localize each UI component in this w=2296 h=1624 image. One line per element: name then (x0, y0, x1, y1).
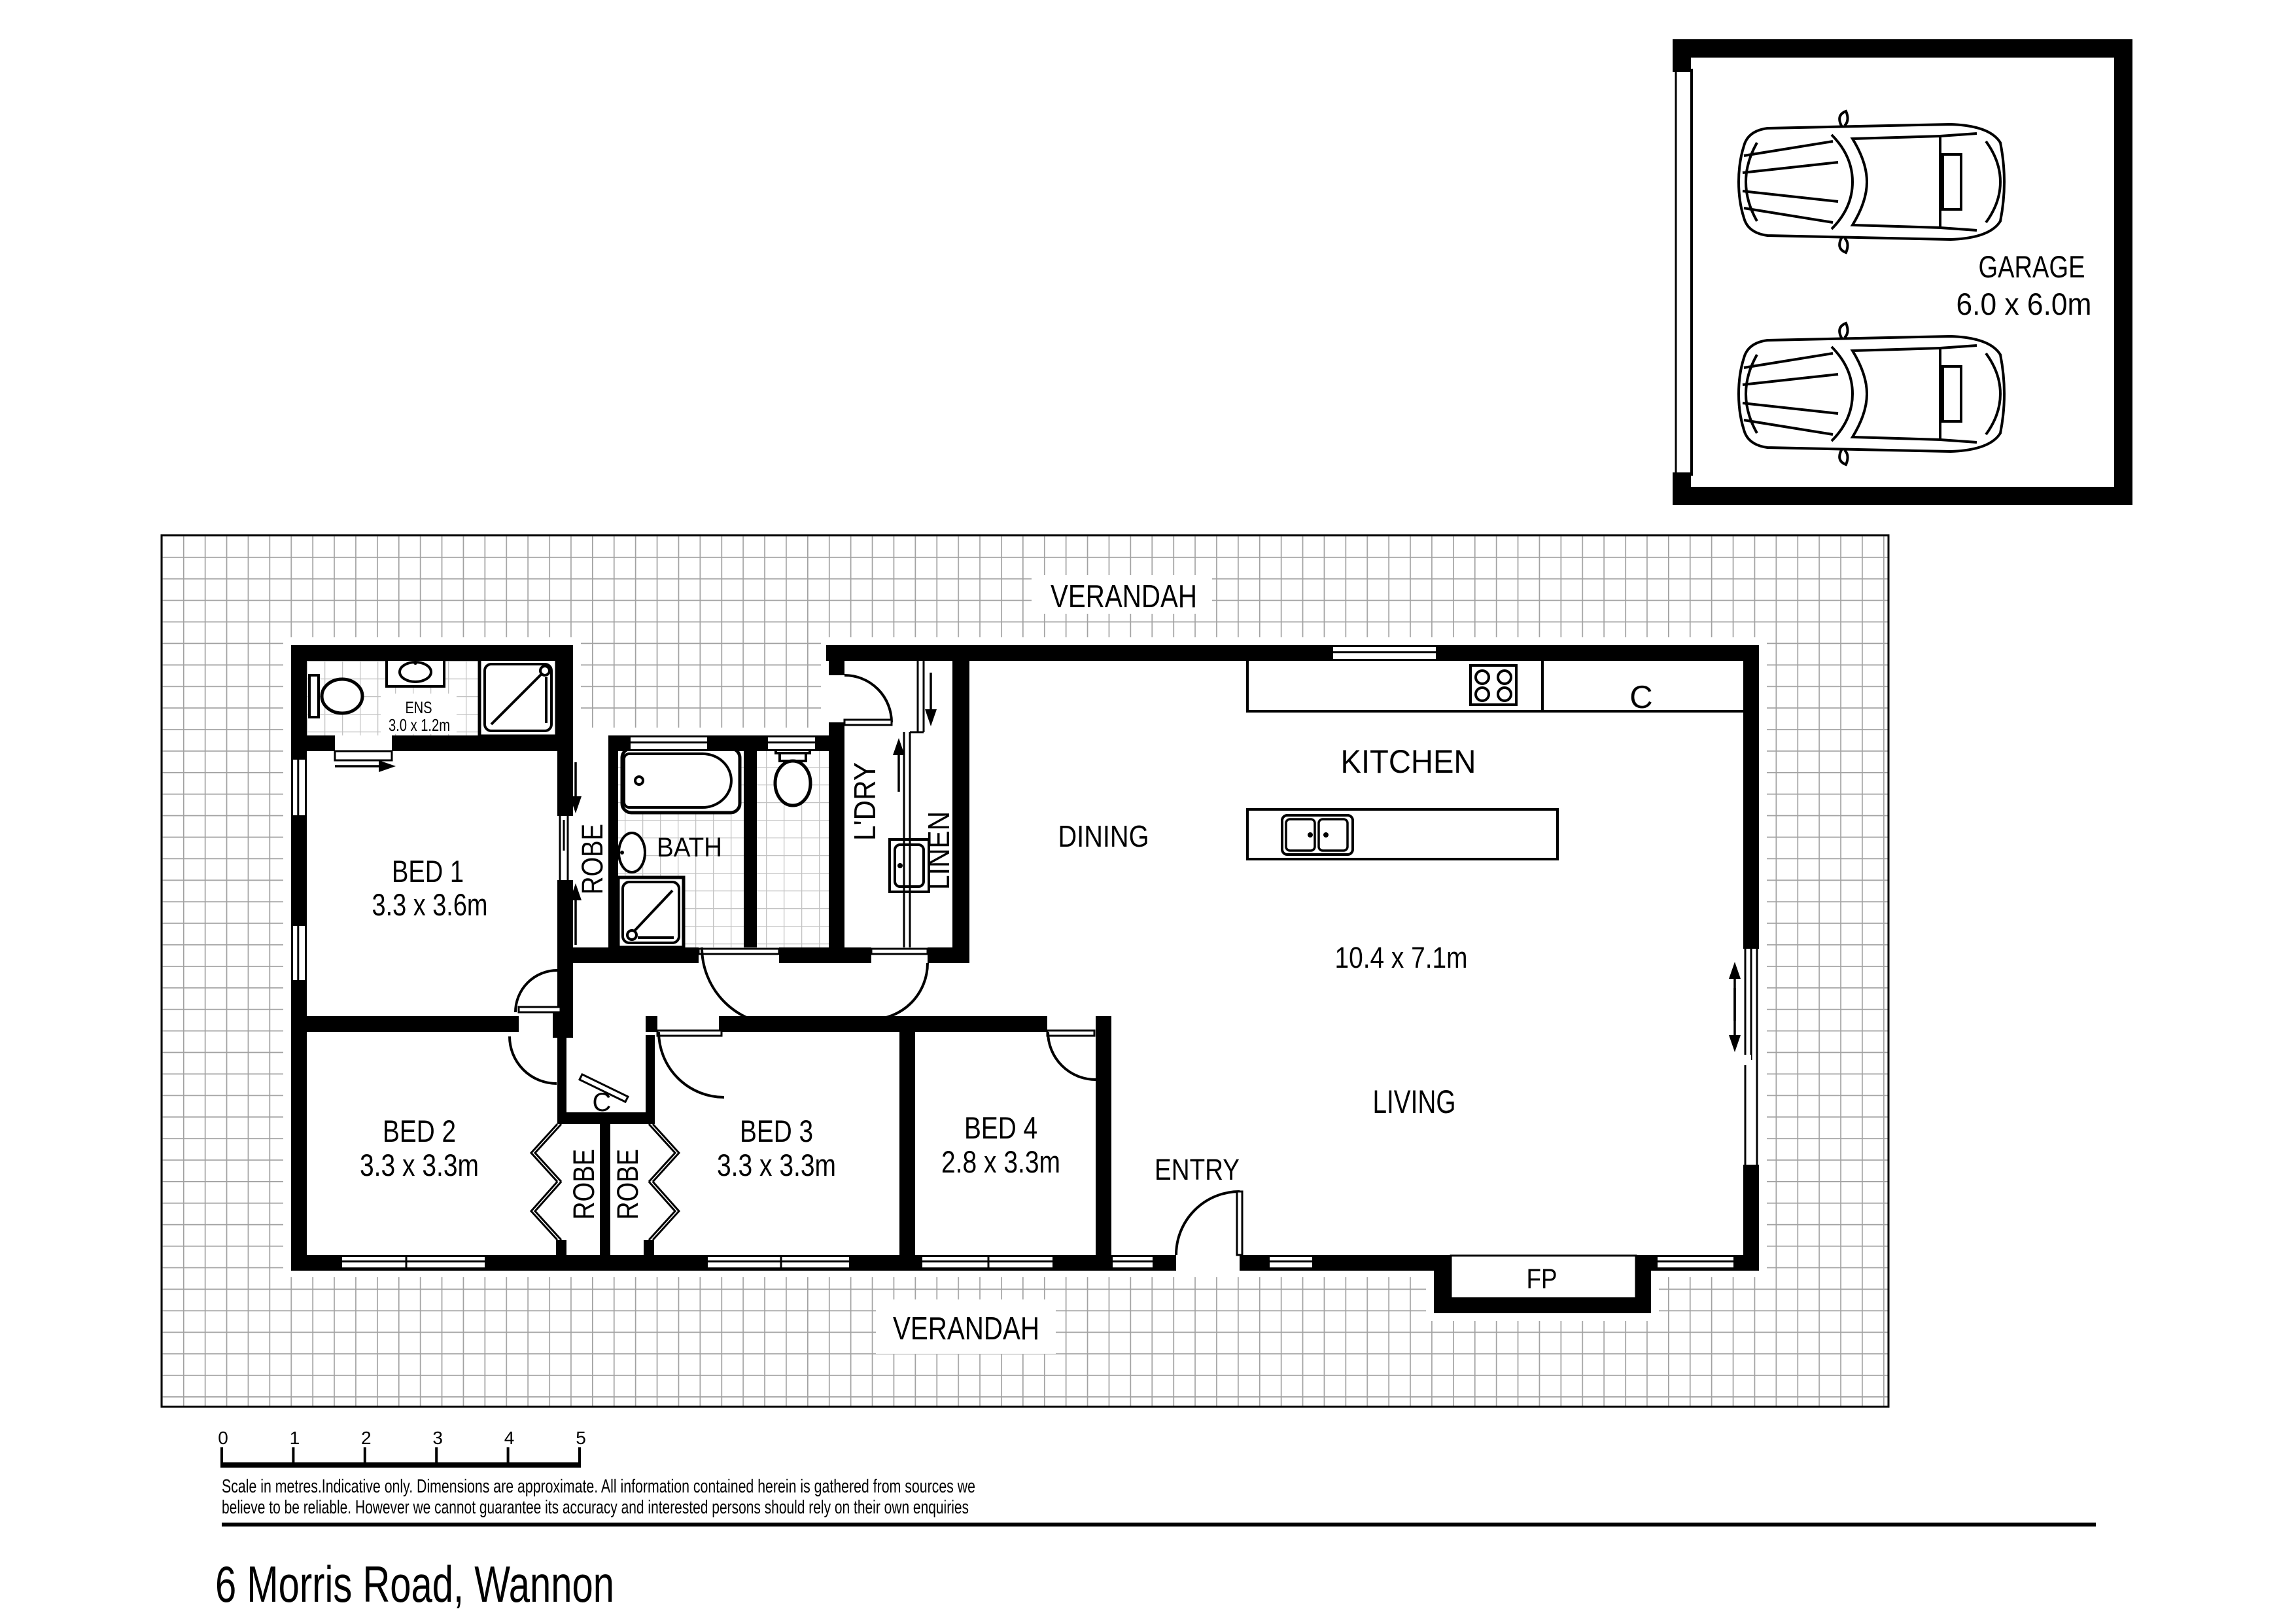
svg-text:ENS: ENS (406, 699, 432, 717)
svg-text:VERANDAH: VERANDAH (1051, 579, 1197, 614)
svg-text:10.4 x 7.1m: 10.4 x 7.1m (1335, 941, 1468, 974)
svg-text:ROBE: ROBE (611, 1149, 644, 1220)
svg-text:3: 3 (432, 1428, 443, 1448)
svg-text:L'DRY: L'DRY (848, 762, 882, 841)
svg-text:5: 5 (576, 1428, 586, 1448)
svg-text:6.0 x 6.0m: 6.0 x 6.0m (1957, 287, 2092, 321)
svg-text:FP: FP (1527, 1263, 1557, 1295)
svg-text:C: C (1629, 680, 1652, 715)
svg-text:2.8 x 3.3m: 2.8 x 3.3m (941, 1144, 1060, 1179)
svg-text:BATH: BATH (657, 832, 722, 862)
svg-text:3.0 x 1.2m: 3.0 x 1.2m (389, 715, 450, 735)
svg-text:BED 4: BED 4 (964, 1110, 1037, 1145)
svg-text:BED 2: BED 2 (383, 1114, 456, 1148)
svg-text:ROBE: ROBE (576, 824, 609, 894)
svg-text:2: 2 (361, 1428, 372, 1448)
svg-text:3.3 x 3.3m: 3.3 x 3.3m (717, 1148, 836, 1182)
svg-text:BED 1: BED 1 (392, 854, 464, 889)
svg-text:LIVING: LIVING (1373, 1084, 1456, 1120)
svg-text:3.3 x 3.3m: 3.3 x 3.3m (360, 1148, 479, 1182)
svg-text:GARAGE: GARAGE (1979, 249, 2085, 284)
svg-text:LINEN: LINEN (922, 811, 956, 890)
svg-text:0: 0 (218, 1428, 228, 1448)
svg-text:BED 3: BED 3 (740, 1114, 813, 1148)
svg-text:4: 4 (504, 1428, 515, 1448)
svg-text:KITCHEN: KITCHEN (1341, 743, 1476, 780)
svg-text:DINING: DINING (1058, 819, 1149, 853)
svg-text:ROBE: ROBE (567, 1149, 600, 1220)
svg-text:1: 1 (290, 1428, 300, 1448)
svg-text:ENTRY: ENTRY (1155, 1153, 1240, 1186)
svg-text:believe to be reliable. Howeve: believe to be reliable. However we canno… (222, 1497, 969, 1518)
svg-text:Scale in metres.Indicative onl: Scale in metres.Indicative only. Dimensi… (222, 1476, 975, 1497)
svg-text:3.3 x 3.6m: 3.3 x 3.6m (372, 887, 488, 922)
svg-text:6 Morris Road, Wannon: 6 Morris Road, Wannon (215, 1555, 614, 1613)
svg-text:C: C (593, 1088, 612, 1117)
svg-text:VERANDAH: VERANDAH (893, 1311, 1039, 1347)
